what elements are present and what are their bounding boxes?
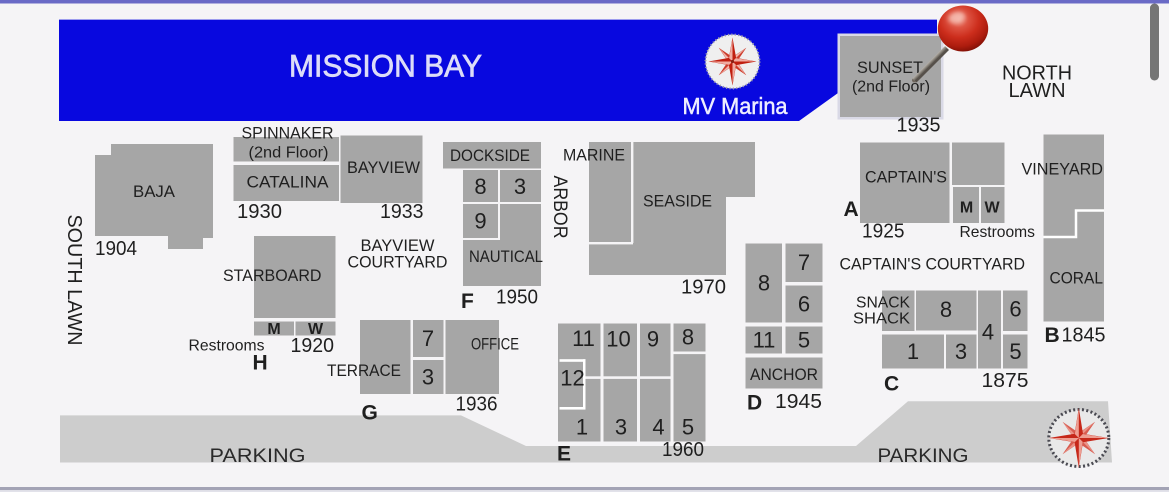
svg-text:MISSION BAY: MISSION BAY xyxy=(289,48,482,84)
svg-text:1: 1 xyxy=(576,415,588,440)
svg-text:1845: 1845 xyxy=(1062,325,1106,347)
svg-text:BAYVIEW: BAYVIEW xyxy=(347,158,420,177)
svg-text:STARBOARD: STARBOARD xyxy=(223,266,322,285)
svg-text:4: 4 xyxy=(652,415,664,440)
svg-text:1950: 1950 xyxy=(496,287,538,309)
svg-text:8: 8 xyxy=(758,271,770,296)
svg-text:M: M xyxy=(267,321,280,338)
svg-text:M: M xyxy=(960,200,973,217)
svg-text:BAJA: BAJA xyxy=(133,182,176,201)
svg-text:1930: 1930 xyxy=(237,201,282,223)
svg-text:SPINNAKER: SPINNAKER xyxy=(242,124,334,143)
svg-text:10: 10 xyxy=(606,327,630,352)
svg-text:1945: 1945 xyxy=(775,391,822,413)
svg-text:8: 8 xyxy=(682,325,694,350)
svg-text:11: 11 xyxy=(572,326,595,351)
svg-text:Restrooms: Restrooms xyxy=(960,224,1036,241)
svg-text:G: G xyxy=(362,402,378,425)
svg-text:H: H xyxy=(253,352,268,375)
svg-text:ANCHOR: ANCHOR xyxy=(750,365,818,384)
svg-text:E: E xyxy=(557,443,571,466)
svg-text:OFFICE: OFFICE xyxy=(471,335,519,354)
svg-text:3: 3 xyxy=(422,365,434,390)
svg-text:12: 12 xyxy=(560,366,584,391)
svg-text:F: F xyxy=(461,290,474,313)
svg-text:3: 3 xyxy=(615,415,627,440)
svg-text:SEASIDE: SEASIDE xyxy=(643,192,712,211)
svg-text:PARKING: PARKING xyxy=(878,445,969,467)
svg-text:MARINE: MARINE xyxy=(563,146,625,165)
svg-text:SNACK: SNACK xyxy=(856,295,910,312)
svg-text:5: 5 xyxy=(798,328,810,353)
svg-text:3: 3 xyxy=(955,339,967,364)
svg-text:1875: 1875 xyxy=(982,370,1029,392)
svg-text:LAWN: LAWN xyxy=(1009,79,1066,102)
svg-text:9: 9 xyxy=(647,327,659,352)
svg-text:SHACK: SHACK xyxy=(853,311,910,328)
svg-text:DOCKSIDE: DOCKSIDE xyxy=(450,146,530,165)
svg-text:9: 9 xyxy=(474,209,486,234)
svg-text:VINEYARD: VINEYARD xyxy=(1022,160,1104,179)
svg-text:6: 6 xyxy=(798,292,810,317)
svg-text:D: D xyxy=(747,392,762,415)
svg-text:CATALINA: CATALINA xyxy=(247,173,330,192)
svg-text:COURTYARD: COURTYARD xyxy=(348,253,448,272)
svg-text:1904: 1904 xyxy=(95,238,137,260)
svg-text:W: W xyxy=(984,200,1000,217)
svg-text:1925: 1925 xyxy=(862,221,905,243)
svg-text:1933: 1933 xyxy=(380,201,424,223)
svg-text:PARKING: PARKING xyxy=(210,445,306,467)
svg-text:SUNSET: SUNSET xyxy=(857,58,923,77)
svg-text:11: 11 xyxy=(753,328,776,353)
svg-text:4: 4 xyxy=(982,320,994,345)
svg-text:TERRACE: TERRACE xyxy=(327,361,401,380)
svg-text:7: 7 xyxy=(798,250,810,275)
svg-text:SOUTH LAWN: SOUTH LAWN xyxy=(63,215,86,346)
svg-text:7: 7 xyxy=(422,326,434,351)
svg-text:1: 1 xyxy=(907,339,919,364)
svg-text:NAUTICAL: NAUTICAL xyxy=(469,247,543,266)
svg-text:MV Marina: MV Marina xyxy=(683,93,788,119)
svg-text:CORAL: CORAL xyxy=(1050,269,1104,288)
svg-text:1960: 1960 xyxy=(662,439,704,461)
svg-text:6: 6 xyxy=(1009,297,1021,322)
svg-text:8: 8 xyxy=(940,297,952,322)
svg-text:CAPTAIN'S: CAPTAIN'S xyxy=(865,168,947,187)
svg-text:1936: 1936 xyxy=(456,394,498,416)
svg-text:ARBOR: ARBOR xyxy=(549,176,570,239)
svg-text:(2nd Floor): (2nd Floor) xyxy=(852,79,930,96)
svg-text:1920: 1920 xyxy=(291,335,335,357)
svg-text:1970: 1970 xyxy=(681,277,726,299)
svg-text:5: 5 xyxy=(682,415,694,440)
svg-text:B: B xyxy=(1045,324,1060,347)
svg-text:1935: 1935 xyxy=(897,115,941,137)
svg-text:5: 5 xyxy=(1009,339,1021,364)
svg-text:CAPTAIN'S COURTYARD: CAPTAIN'S COURTYARD xyxy=(840,255,1026,274)
svg-text:8: 8 xyxy=(474,174,486,199)
svg-text:C: C xyxy=(884,373,899,396)
svg-text:A: A xyxy=(844,198,859,221)
svg-text:3: 3 xyxy=(514,174,526,199)
svg-text:(2nd Floor): (2nd Floor) xyxy=(249,145,329,162)
